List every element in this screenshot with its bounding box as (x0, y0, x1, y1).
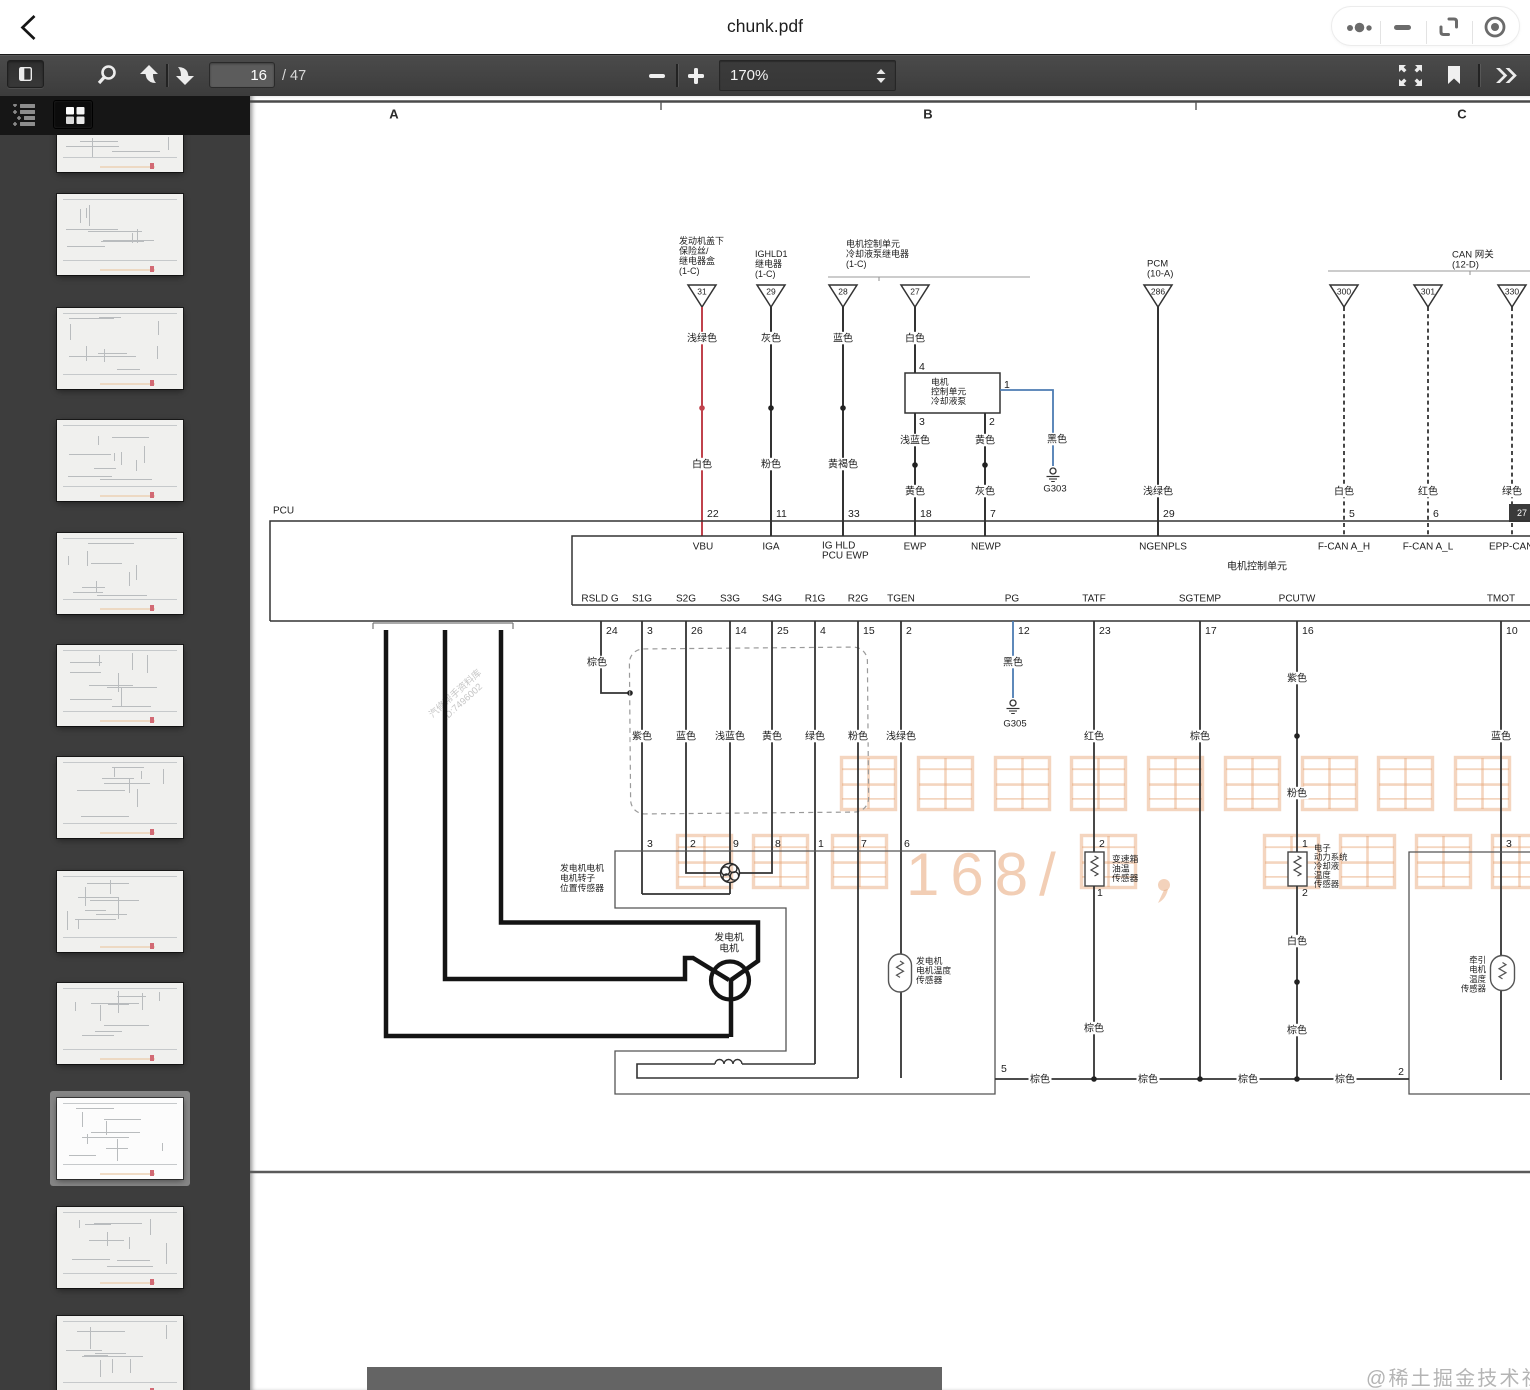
svg-text:电机: 电机 (719, 942, 739, 955)
svg-text:3: 3 (1506, 838, 1512, 850)
svg-text:C: C (1457, 107, 1467, 122)
svg-text:蓝色: 蓝色 (676, 730, 696, 743)
svg-text:浅绿色: 浅绿色 (687, 332, 717, 345)
svg-text:16: 16 (1302, 625, 1314, 637)
svg-text:EPP-CAN_H: EPP-CAN_H (1489, 542, 1530, 553)
svg-text:15: 15 (863, 625, 875, 637)
svg-text:浅绿色: 浅绿色 (886, 730, 916, 743)
svg-text:PCUTW: PCUTW (1279, 594, 1316, 605)
svg-text:F-CAN A_L: F-CAN A_L (1403, 542, 1454, 553)
svg-text:紫色: 紫色 (1287, 672, 1307, 685)
svg-text:发电机电机: 发电机电机 (560, 862, 604, 873)
svg-text:26: 26 (691, 625, 703, 637)
svg-text:发电机: 发电机 (714, 931, 744, 944)
svg-text:白色: 白色 (905, 332, 925, 345)
svg-text:RSLD G: RSLD G (581, 594, 618, 605)
svg-text:1: 1 (818, 838, 824, 850)
svg-text:黑色: 黑色 (1047, 433, 1067, 446)
svg-text:PCU EWP: PCU EWP (822, 551, 869, 562)
svg-text:保险丝/: 保险丝/ (679, 245, 709, 256)
svg-text:温度: 温度 (1469, 974, 1486, 984)
svg-text:传感器: 传感器 (916, 974, 943, 985)
svg-text:11: 11 (776, 508, 787, 520)
svg-text:10: 10 (1506, 625, 1518, 637)
svg-text:冷却液泵继电器: 冷却液泵继电器 (846, 248, 909, 259)
svg-text:红色: 红色 (1418, 485, 1438, 498)
svg-text:黄色: 黄色 (762, 730, 782, 743)
svg-text:14: 14 (735, 625, 747, 637)
svg-text:PG: PG (1005, 594, 1020, 605)
svg-text:4: 4 (919, 361, 925, 373)
svg-text:B: B (923, 107, 932, 122)
svg-text:PCU: PCU (273, 506, 294, 517)
svg-text:传感器: 传感器 (1314, 879, 1340, 889)
svg-text:电机控制单元: 电机控制单元 (1227, 560, 1287, 573)
svg-text:黄色: 黄色 (905, 485, 925, 498)
svg-text:301: 301 (1421, 287, 1435, 297)
svg-text:灰色: 灰色 (761, 332, 781, 345)
svg-text:粉色: 粉色 (761, 458, 781, 471)
svg-text:S3G: S3G (720, 594, 740, 605)
svg-text:SGTEMP: SGTEMP (1179, 594, 1222, 605)
svg-text:EWP: EWP (904, 542, 927, 553)
svg-text:黄褐色: 黄褐色 (828, 458, 858, 471)
svg-text:8: 8 (775, 838, 781, 850)
svg-text:粉色: 粉色 (848, 730, 868, 743)
svg-text:22: 22 (707, 508, 719, 520)
svg-text:1: 1 (1302, 838, 1308, 850)
svg-text:黄色: 黄色 (975, 434, 995, 447)
svg-text:A: A (389, 107, 399, 122)
svg-text:2: 2 (1099, 838, 1105, 850)
svg-text:300: 300 (1337, 287, 1351, 297)
svg-text:2: 2 (1398, 1066, 1404, 1078)
svg-text:灰色: 灰色 (975, 485, 995, 498)
svg-text:冷却液泵: 冷却液泵 (931, 395, 966, 406)
svg-text:25: 25 (777, 625, 789, 637)
svg-text:TGEN: TGEN (887, 594, 915, 605)
svg-text:发电机: 发电机 (916, 955, 943, 966)
svg-text:(1-C): (1-C) (755, 269, 776, 279)
svg-text:27: 27 (1517, 508, 1527, 518)
svg-text:棕色: 棕色 (1138, 1073, 1158, 1086)
svg-text:IGHLD1: IGHLD1 (755, 249, 788, 259)
svg-text:3: 3 (647, 625, 653, 637)
svg-text:电机: 电机 (1469, 965, 1486, 975)
svg-text:电机温度: 电机温度 (916, 965, 951, 976)
svg-text:31: 31 (697, 287, 707, 297)
svg-text:棕色: 棕色 (1335, 1073, 1355, 1086)
svg-text:NGENPLS: NGENPLS (1139, 542, 1187, 553)
svg-text:2: 2 (690, 838, 696, 850)
svg-text:17: 17 (1205, 625, 1217, 637)
svg-text:棕色: 棕色 (1030, 1073, 1050, 1086)
svg-text:S1G: S1G (632, 594, 652, 605)
svg-text:6: 6 (1433, 508, 1439, 520)
svg-text:棕色: 棕色 (1084, 1022, 1104, 1035)
svg-text:24: 24 (606, 625, 618, 637)
svg-text:3: 3 (647, 838, 653, 850)
svg-text:发动机盖下: 发动机盖下 (679, 235, 724, 246)
svg-text:5: 5 (1001, 1063, 1007, 1075)
svg-text:G303: G303 (1043, 483, 1066, 494)
svg-text:23: 23 (1099, 625, 1111, 637)
svg-text:R1G: R1G (805, 594, 826, 605)
svg-text:红色: 红色 (1084, 730, 1104, 743)
svg-text:油温: 油温 (1112, 863, 1130, 874)
svg-text:棕色: 棕色 (1190, 730, 1210, 743)
svg-text:白色: 白色 (1287, 935, 1307, 948)
svg-text:5: 5 (1349, 508, 1355, 520)
svg-text:12: 12 (1018, 625, 1030, 637)
svg-text:变速箱: 变速箱 (1112, 853, 1139, 864)
svg-text:7: 7 (861, 838, 867, 850)
svg-text:电机控制单元: 电机控制单元 (846, 238, 900, 249)
svg-text:1: 1 (1004, 379, 1010, 391)
svg-text:S4G: S4G (762, 594, 782, 605)
svg-text:(12-D): (12-D) (1452, 259, 1479, 270)
svg-text:传感器: 传感器 (1112, 872, 1139, 883)
svg-text:蓝色: 蓝色 (833, 332, 853, 345)
svg-text:绿色: 绿色 (1502, 485, 1522, 498)
svg-text:4: 4 (820, 625, 826, 637)
svg-text:IGA: IGA (762, 542, 780, 553)
svg-text:TATF: TATF (1082, 594, 1106, 605)
svg-text:黑色: 黑色 (1003, 656, 1023, 669)
svg-text:7: 7 (990, 508, 996, 520)
svg-text:29: 29 (766, 287, 776, 297)
svg-text:F-CAN A_H: F-CAN A_H (1318, 542, 1370, 553)
svg-text:28: 28 (838, 287, 848, 297)
svg-text:33: 33 (848, 508, 860, 520)
svg-text:白色: 白色 (1334, 485, 1354, 498)
svg-text:浅绿色: 浅绿色 (1143, 485, 1173, 498)
svg-text:6: 6 (904, 838, 910, 850)
svg-text:TMOT: TMOT (1487, 594, 1515, 605)
svg-text:浅蓝色: 浅蓝色 (900, 434, 930, 447)
svg-text:继电器盒: 继电器盒 (679, 255, 715, 266)
svg-text:绿色: 绿色 (805, 730, 825, 743)
svg-text:2: 2 (989, 416, 995, 428)
svg-text:330: 330 (1505, 287, 1519, 297)
svg-text:(1-C): (1-C) (846, 259, 867, 269)
svg-text:浅蓝色: 浅蓝色 (715, 730, 745, 743)
svg-text:27: 27 (910, 287, 920, 297)
svg-text:白色: 白色 (692, 458, 712, 471)
svg-text:粉色: 粉色 (1287, 787, 1307, 800)
svg-text:R2G: R2G (848, 594, 869, 605)
svg-text:电机转子: 电机转子 (560, 872, 595, 883)
svg-text:棕色: 棕色 (1287, 1024, 1307, 1037)
svg-text:继电器: 继电器 (755, 258, 782, 269)
svg-text:蓝色: 蓝色 (1491, 730, 1511, 743)
svg-text:S2G: S2G (676, 594, 696, 605)
svg-text:3: 3 (919, 416, 925, 428)
svg-text:29: 29 (1163, 508, 1175, 520)
svg-text:286: 286 (1151, 287, 1165, 297)
svg-text:牵引: 牵引 (1469, 955, 1486, 965)
svg-text:NEWP: NEWP (971, 542, 1001, 553)
svg-text:棕色: 棕色 (587, 656, 607, 669)
svg-text:18: 18 (920, 508, 932, 520)
svg-text:传感器: 传感器 (1461, 984, 1487, 994)
svg-text:9: 9 (733, 838, 739, 850)
svg-text:位置传感器: 位置传感器 (560, 882, 604, 893)
svg-text:(10-A): (10-A) (1147, 268, 1173, 279)
svg-text:紫色: 紫色 (632, 730, 652, 743)
svg-text:(1-C): (1-C) (679, 266, 700, 276)
svg-text:G305: G305 (1003, 718, 1026, 729)
svg-text:VBU: VBU (693, 542, 714, 553)
svg-text:棕色: 棕色 (1238, 1073, 1258, 1086)
svg-text:2: 2 (1302, 887, 1308, 899)
svg-text:1: 1 (1097, 887, 1103, 899)
svg-text:2: 2 (906, 625, 912, 637)
